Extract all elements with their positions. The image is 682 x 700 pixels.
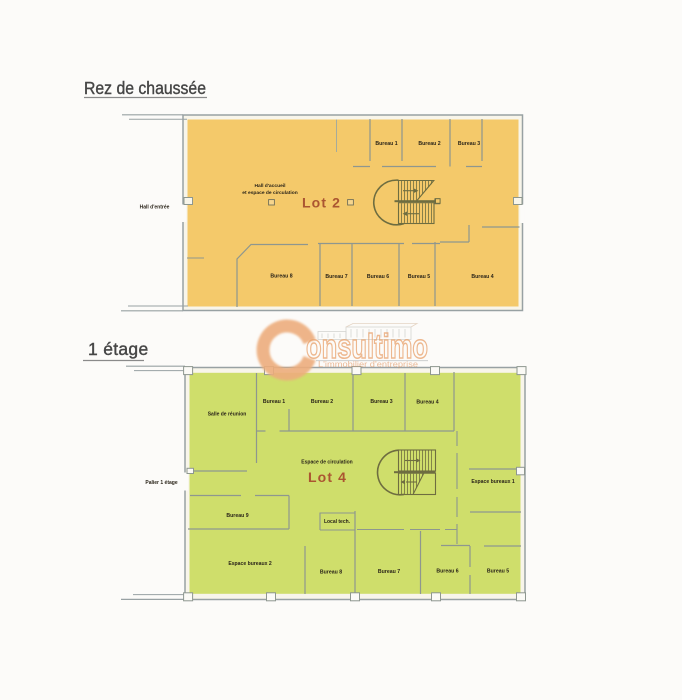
svg-text:Bureau 5: Bureau 5 bbox=[408, 274, 430, 280]
svg-text:Salle de réunion: Salle de réunion bbox=[208, 412, 247, 418]
svg-text:Local tech.: Local tech. bbox=[324, 519, 351, 525]
svg-text:Palier 1 étage: Palier 1 étage bbox=[145, 480, 177, 486]
svg-text:Bureau 7: Bureau 7 bbox=[325, 274, 347, 280]
svg-text:Bureau 6: Bureau 6 bbox=[436, 569, 458, 575]
svg-text:et espace de circulation: et espace de circulation bbox=[242, 190, 297, 196]
svg-text:Espace de circulation: Espace de circulation bbox=[301, 460, 352, 466]
svg-text:Bureau 8: Bureau 8 bbox=[320, 570, 342, 576]
svg-text:Espace bureaux 2: Espace bureaux 2 bbox=[228, 561, 271, 567]
svg-text:Espace bureaux 1: Espace bureaux 1 bbox=[471, 479, 514, 485]
svg-text:Bureau 2: Bureau 2 bbox=[311, 399, 333, 405]
svg-text:Bureau 4: Bureau 4 bbox=[471, 274, 493, 280]
svg-text:Bureau 8: Bureau 8 bbox=[270, 274, 292, 280]
svg-text:L'immobilier d'entreprise: L'immobilier d'entreprise bbox=[318, 360, 418, 369]
svg-text:1 étage: 1 étage bbox=[88, 339, 149, 359]
svg-text:Lot 4: Lot 4 bbox=[308, 469, 347, 485]
svg-text:Bureau 4: Bureau 4 bbox=[416, 400, 438, 406]
svg-text:Bureau 1: Bureau 1 bbox=[263, 399, 285, 405]
svg-text:Bureau 3: Bureau 3 bbox=[458, 141, 480, 147]
svg-text:Hall d'accueil: Hall d'accueil bbox=[254, 183, 286, 189]
svg-text:Bureau 1: Bureau 1 bbox=[375, 141, 397, 147]
svg-text:Rez de chaussée: Rez de chaussée bbox=[84, 78, 206, 98]
svg-text:Bureau 3: Bureau 3 bbox=[370, 399, 392, 405]
svg-text:Bureau 2: Bureau 2 bbox=[418, 141, 440, 147]
svg-text:Lot 2: Lot 2 bbox=[302, 195, 341, 211]
svg-text:Bureau 6: Bureau 6 bbox=[367, 274, 389, 280]
svg-text:Bureau 9: Bureau 9 bbox=[226, 513, 248, 519]
svg-text:Hall d'entrée: Hall d'entrée bbox=[140, 205, 170, 211]
svg-text:Bureau 7: Bureau 7 bbox=[378, 569, 400, 575]
svg-text:Bureau 5: Bureau 5 bbox=[487, 569, 509, 575]
